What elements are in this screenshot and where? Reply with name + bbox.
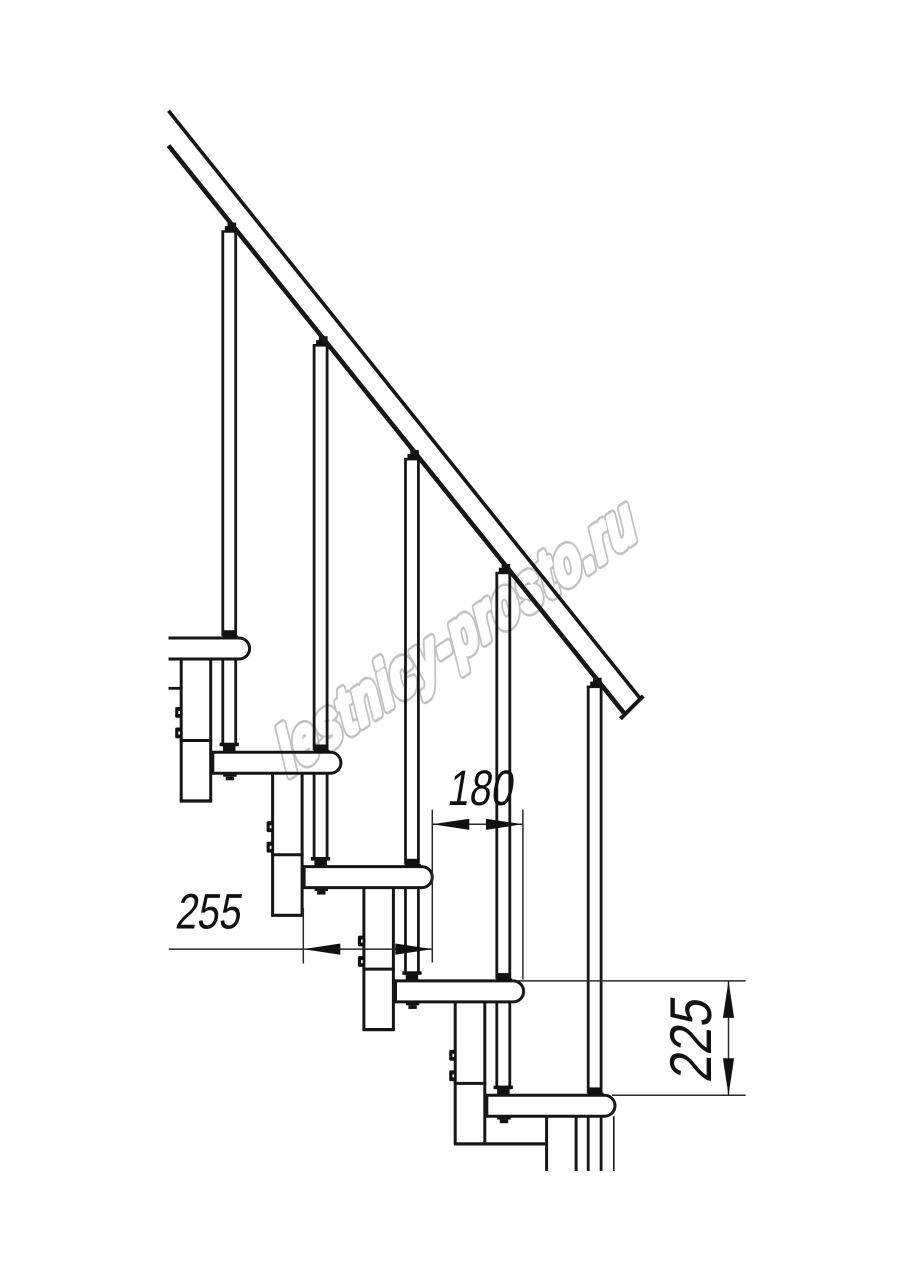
svg-text:255: 255 <box>173 883 247 939</box>
svg-text:225: 225 <box>657 991 724 1086</box>
svg-text:180: 180 <box>445 760 519 816</box>
